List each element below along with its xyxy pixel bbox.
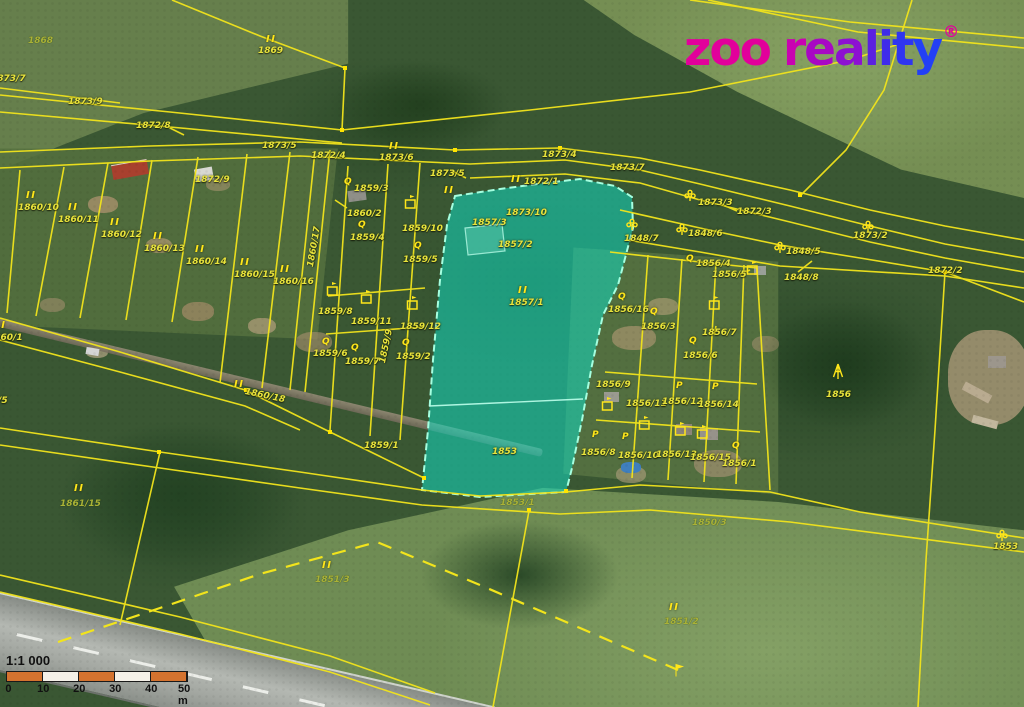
logo-word-zoo: zoo [684,22,770,77]
scale-segment [79,672,115,681]
scale-segment [151,672,187,681]
dashed-boundary [58,542,678,670]
scale-ratio: 1:1 000 [6,653,206,668]
scale-ticks: 01020304050 m [6,682,206,696]
scale-tick: 50 m [178,683,198,707]
scale-tick: 20 [73,683,85,695]
zoo-reality-logo: zooreality® [684,22,957,77]
highlighted-parcel-group [422,179,633,497]
scale-segment [7,672,43,681]
scale-segment [43,672,79,681]
cadastral-lines-layer [0,0,1024,707]
cadastral-map[interactable]: 186818691873/71873/91872/81872/91873/518… [0,0,1024,707]
scale-tick: 10 [37,683,49,695]
scale-tick: 0 [5,683,11,695]
scale-tick: 40 [145,683,157,695]
scale-segment [115,672,151,681]
scale-segments [6,671,188,682]
highlighted-parcel[interactable] [422,179,633,497]
registered-mark: ® [943,22,957,41]
scale-tick: 30 [109,683,121,695]
scale-bar: 1:1 000 01020304050 m [6,653,206,696]
logo-word2: reality [783,22,941,77]
